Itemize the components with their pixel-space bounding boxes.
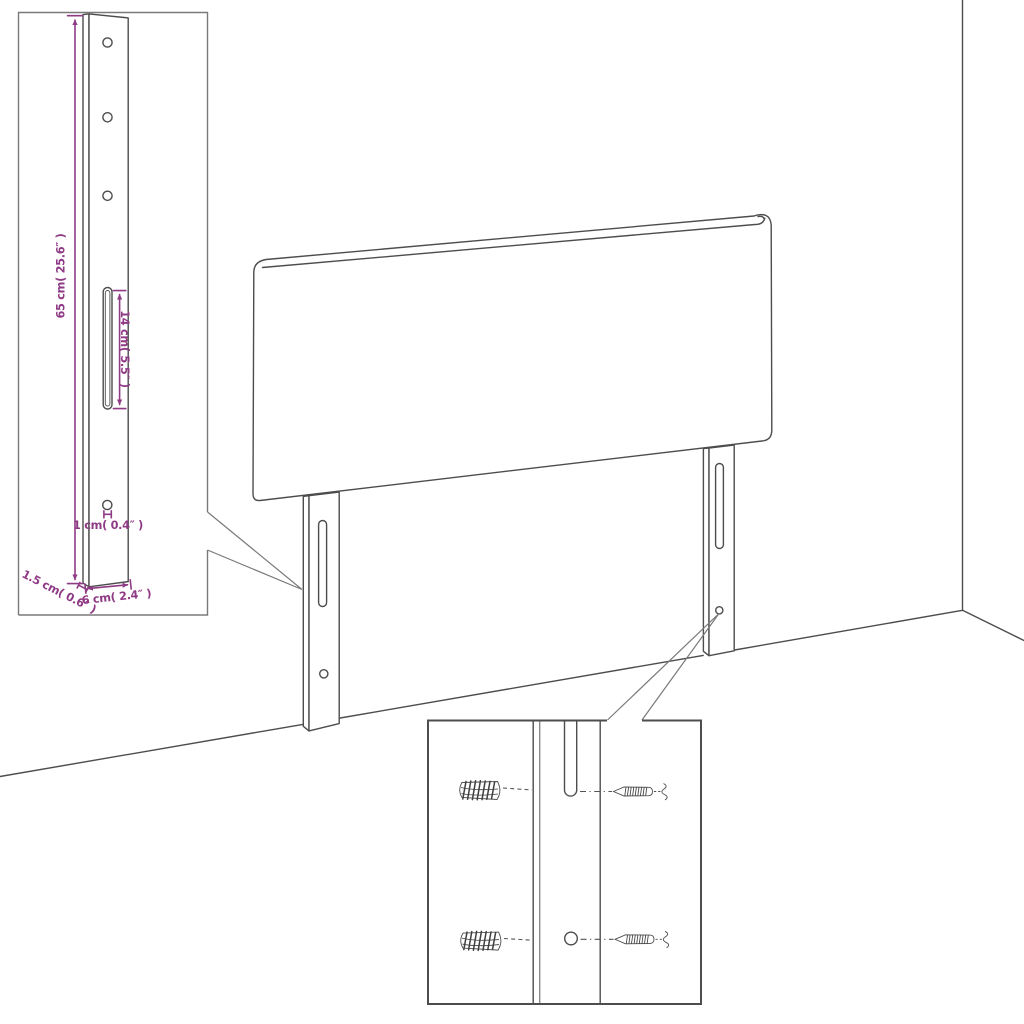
inset-leg-detail: 65 cm( 25.6″ ) 14 cm( 5.5″ ) 1 cm( 0.4″ …	[19, 13, 208, 617]
dimension-slot-length-label: 14 cm( 5.5″ )	[118, 310, 131, 388]
alignment-dash-top-left	[503, 788, 532, 790]
diagram-canvas: 65 cm( 25.6″ ) 14 cm( 5.5″ ) 1 cm( 0.4″ …	[0, 0, 1024, 1024]
left-leg-side-face	[303, 496, 309, 731]
callout-mounting	[608, 614, 720, 721]
dimension-width-label: 6 cm( 2.4″ )	[81, 587, 152, 607]
dimension-hole-diameter-label: 1 cm( 0.4″ )	[73, 519, 143, 532]
leg-detail-side-face	[83, 14, 89, 587]
wall-plug-bottom	[461, 931, 501, 950]
floor-line	[0, 610, 1024, 776]
dimension-height: 65 cm( 25.6″ )	[55, 16, 83, 584]
right-leg-front-face	[709, 445, 734, 656]
leg-detail-drawing	[83, 14, 128, 587]
headboard-panel	[253, 215, 772, 501]
left-leg-front-face	[309, 492, 339, 731]
inset-mounting-detail	[428, 721, 701, 1005]
screw-bottom	[615, 931, 669, 948]
mounting-leg-strip	[533, 721, 600, 1003]
dimension-height-label: 65 cm( 25.6″ )	[55, 233, 68, 318]
mounting-screw-hole	[565, 932, 578, 945]
mounting-keyhole-slot	[565, 721, 577, 796]
callout-left-leg	[208, 512, 303, 590]
headboard	[253, 215, 772, 501]
alignment-dash-bottom-left	[504, 939, 532, 941]
left-leg	[303, 492, 339, 731]
screw-top	[614, 784, 668, 801]
wall-plug-top	[460, 781, 500, 800]
